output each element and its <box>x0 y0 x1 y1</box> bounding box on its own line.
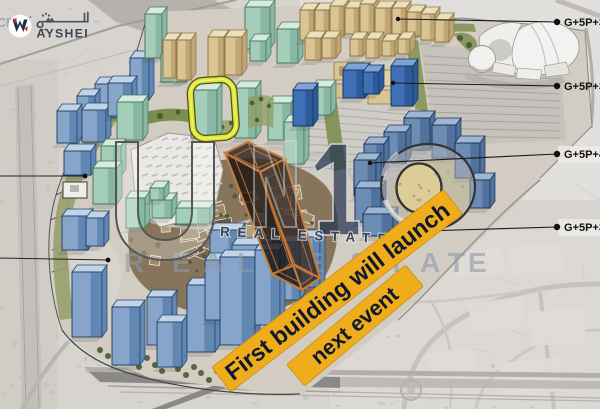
svg-text:A: A <box>203 247 223 278</box>
svg-text:A: A <box>420 247 440 278</box>
svg-text:E: E <box>468 247 487 278</box>
svg-text:AYSHEI: AYSHEI <box>37 27 89 41</box>
svg-text:G+5P+4: G+5P+4 <box>564 149 600 161</box>
svg-text:G+5P+3: G+5P+3 <box>564 17 600 29</box>
svg-text:L: L <box>237 247 254 278</box>
svg-text:G+5P+3: G+5P+3 <box>564 81 600 93</box>
svg-text:T: T <box>448 247 465 278</box>
svg-text:G+5P+3: G+5P+3 <box>564 222 600 234</box>
